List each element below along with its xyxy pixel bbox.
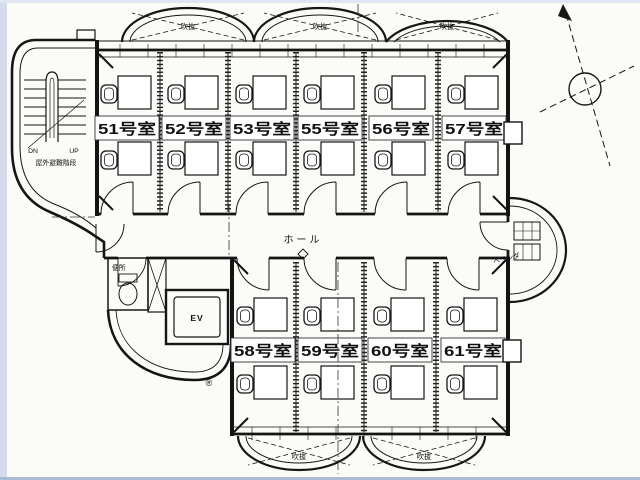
escape-stair — [12, 30, 104, 258]
stair-up-label: UP — [69, 148, 79, 155]
room-53: 53号室 — [230, 76, 294, 214]
floor-plan: 吹抜 吹抜 吹抜 吹抜 吹抜 DN UP 屋外避難階段 — [0, 0, 640, 480]
void-label: 吹抜 — [181, 22, 195, 31]
room-label: 61号室 — [444, 342, 502, 360]
hall-label: ホール — [284, 234, 323, 246]
workstation — [304, 298, 354, 331]
stair-caption: 屋外避難階段 — [36, 158, 77, 167]
workstation — [101, 76, 151, 109]
elevator-label: EV — [190, 313, 203, 323]
workstation — [448, 142, 498, 175]
stair-down-label: DN — [28, 148, 38, 155]
workstation — [447, 366, 497, 399]
room-57: 57号室 — [442, 76, 506, 214]
room-59: 59号室 — [298, 258, 362, 399]
room-label: 58号室 — [234, 342, 292, 360]
scan-edge-left — [0, 0, 7, 480]
scan-edge-top — [0, 0, 640, 3]
workstation — [101, 142, 151, 175]
door-arc — [304, 258, 336, 290]
workstation — [374, 366, 424, 399]
north-compass-icon — [540, 4, 634, 166]
workstation — [237, 366, 287, 399]
room-label: 57号室 — [445, 120, 503, 138]
toilet-bowl — [119, 283, 137, 305]
workstation — [237, 298, 287, 331]
door-arc — [236, 182, 268, 214]
workstation — [448, 76, 498, 109]
veranda — [510, 198, 566, 302]
room-51: 51号室 — [95, 76, 159, 214]
stair-treads — [24, 80, 86, 134]
veranda-door-arc — [480, 222, 508, 250]
room-61: 61号室 — [441, 258, 505, 399]
door-arc — [447, 258, 479, 290]
door-arc — [101, 182, 133, 214]
door-arc — [304, 182, 336, 214]
workstation — [375, 76, 425, 109]
door-arc — [374, 258, 406, 290]
void-label: 吹抜 — [417, 452, 431, 461]
registered-marker: ® — [206, 378, 213, 388]
workstation — [375, 142, 425, 175]
workstation — [168, 76, 218, 109]
workstation — [168, 142, 218, 175]
wall-unit — [504, 122, 522, 144]
room-label: 53号室 — [233, 120, 291, 138]
room-label: 52号室 — [165, 120, 223, 138]
toilet-label: 便所 — [112, 263, 126, 272]
stair-rail — [46, 72, 58, 142]
room-label: 51号室 — [98, 120, 156, 138]
wall-unit — [503, 340, 521, 362]
room-58: 58号室 — [231, 258, 295, 399]
room-56: 56号室 — [369, 76, 433, 214]
door-arc — [168, 182, 200, 214]
floor-plan-page: 吹抜 吹抜 吹抜 吹抜 吹抜 DN UP 屋外避難階段 — [0, 0, 640, 480]
workstation — [304, 366, 354, 399]
workstation — [304, 76, 354, 109]
void-label: 吹抜 — [440, 22, 454, 31]
workstation — [236, 76, 286, 109]
void-label: 吹抜 — [313, 22, 327, 31]
room-label: 59号室 — [301, 342, 359, 360]
door-arc — [237, 258, 269, 290]
door-arc — [375, 182, 407, 214]
bottom-balcony-arcs — [238, 436, 485, 470]
room-55: 55号室 — [298, 76, 362, 214]
workstation — [304, 142, 354, 175]
pipe-shaft — [148, 258, 166, 312]
room-60: 60号室 — [368, 258, 432, 399]
room-label: 60号室 — [371, 342, 429, 360]
door-arc — [448, 182, 480, 214]
room-52: 52号室 — [162, 76, 226, 214]
workstation — [236, 142, 286, 175]
room-label: 56号室 — [372, 120, 430, 138]
workstation — [374, 298, 424, 331]
workstation — [447, 298, 497, 331]
void-label: 吹抜 — [292, 452, 306, 461]
room-label: 55号室 — [301, 120, 359, 138]
